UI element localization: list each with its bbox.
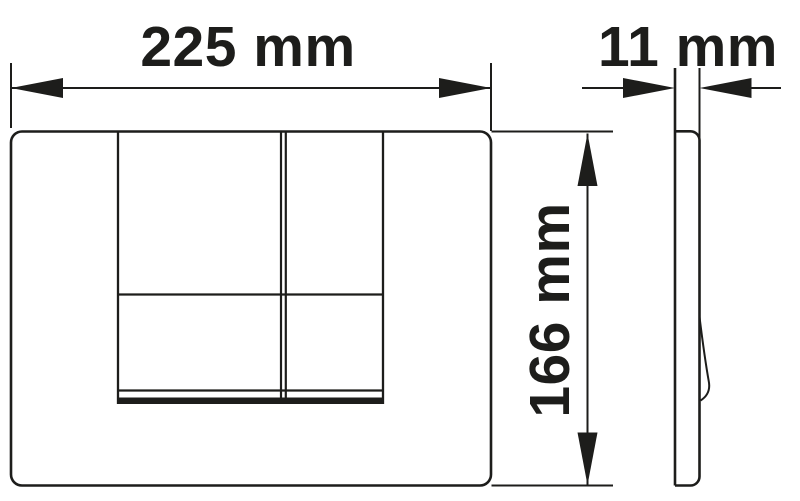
height-arrow-top [578,134,598,187]
front-view [11,132,491,486]
plate-outline [11,132,491,486]
stroke-layer [11,63,781,486]
flush-plate-dimension-drawing: 225 mm 11 mm 166 mm [0,0,800,501]
depth-arrow-left [623,78,675,98]
side-profile-outline [675,131,700,485]
button-panel-shadow-bar [117,398,384,405]
side-view [675,68,709,486]
width-arrow-right [439,78,491,98]
fill-layer: 225 mm 11 mm 166 mm [11,15,778,485]
depth-arrow-right [700,78,752,98]
technical-drawing-canvas: 225 mm 11 mm 166 mm [0,0,800,501]
width-dimension-label: 225 mm [140,15,355,79]
height-dimension-label: 166 mm [518,202,582,417]
height-arrow-bottom [578,433,598,486]
mounting-clip [700,317,710,401]
width-arrow-left [11,78,63,98]
depth-dimension-label: 11 mm [598,15,778,79]
